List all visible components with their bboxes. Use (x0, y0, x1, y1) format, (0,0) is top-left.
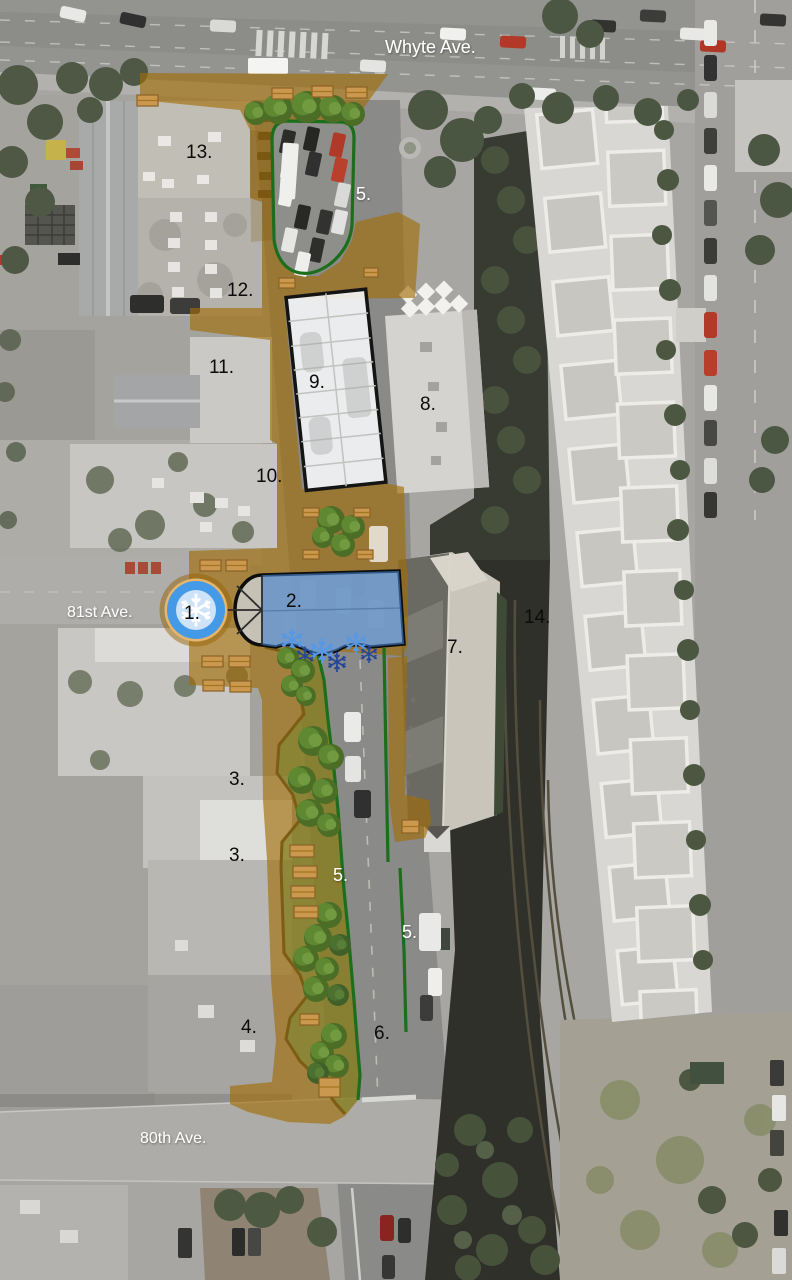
svg-text:10.: 10. (256, 466, 282, 487)
svg-text:8.: 8. (420, 394, 436, 415)
svg-text:81st Ave.: 81st Ave. (67, 604, 133, 621)
svg-text:3.: 3. (229, 769, 245, 790)
svg-text:5.: 5. (356, 184, 371, 204)
svg-text:4.: 4. (241, 1017, 257, 1038)
svg-text:5.: 5. (402, 922, 417, 942)
svg-text:9.: 9. (309, 372, 325, 393)
svg-text:2.: 2. (286, 591, 302, 612)
svg-text:80th Ave.: 80th Ave. (140, 1130, 206, 1147)
svg-text:13.: 13. (186, 142, 212, 163)
svg-text:5.: 5. (333, 865, 348, 885)
svg-text:1.: 1. (184, 603, 200, 624)
svg-text:14.: 14. (524, 607, 550, 628)
svg-text:12.: 12. (227, 280, 253, 301)
svg-text:6.: 6. (374, 1023, 390, 1044)
svg-text:11.: 11. (209, 357, 234, 378)
svg-text:3.: 3. (229, 845, 245, 866)
svg-text:7.: 7. (447, 637, 463, 658)
svg-text:Whyte Ave.: Whyte Ave. (385, 37, 476, 57)
